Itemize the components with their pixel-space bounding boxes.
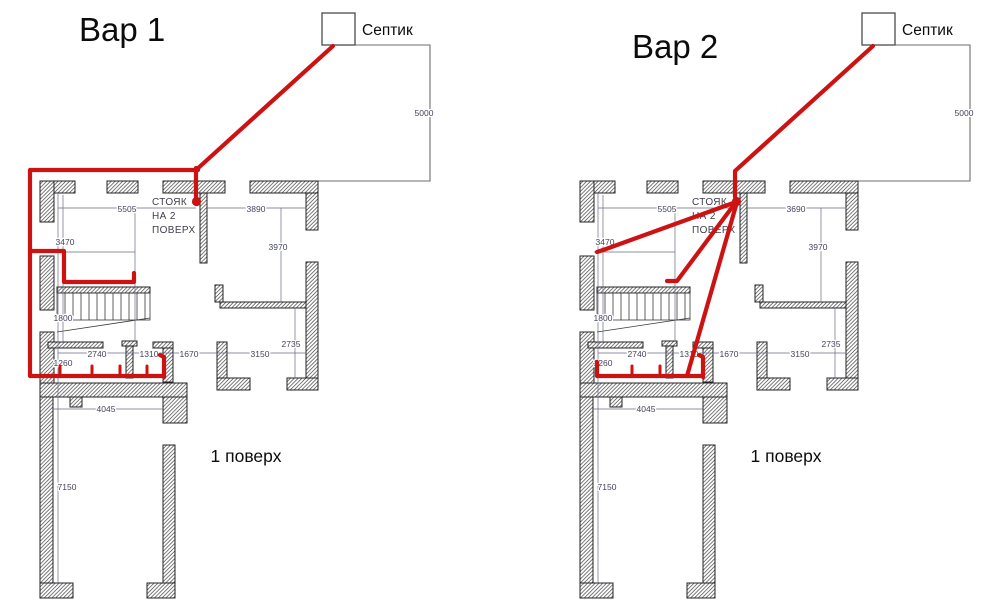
dim-top-right: 3890 xyxy=(247,204,266,214)
septic-label: Септик xyxy=(362,22,413,39)
dim-1260: 1260 xyxy=(54,358,73,368)
pipe-end-stub xyxy=(160,355,164,377)
dim-4045: 4045 xyxy=(637,404,656,414)
dim-2735: 2735 xyxy=(822,339,841,349)
floor-plan-variant-1: Вар 1 Септик 5000 5505 3890 3470 3970 18… xyxy=(30,11,434,598)
dim-7150: 7150 xyxy=(598,482,617,492)
dim-1670: 1670 xyxy=(180,349,199,359)
dim-5505: 5505 xyxy=(118,204,137,214)
pipes-variant-2 xyxy=(597,46,873,377)
dim-top-right: 3690 xyxy=(787,204,806,214)
variant-1-text: Септик 5000 5505 3890 3470 3970 1800 274… xyxy=(54,22,434,492)
variant-1-title: Вар 1 xyxy=(79,11,165,48)
floor-label: 1 поверх xyxy=(211,446,282,466)
dim-3970: 3970 xyxy=(269,242,288,252)
dim-2740: 2740 xyxy=(88,349,107,359)
dim-3150: 3150 xyxy=(251,349,270,359)
dim-4045: 4045 xyxy=(97,404,116,414)
pipe-end-stub xyxy=(699,355,703,377)
floor-plan-variant-2: Вар 2 Септик 5000 5505 3690 3470 3970 18… xyxy=(580,13,974,598)
dim-2735: 2735 xyxy=(282,339,301,349)
pipes-variant-1 xyxy=(30,46,333,377)
blueprint-page: Вар 1 Септик 5000 5505 3890 3470 3970 18… xyxy=(0,0,1000,604)
dim-3470: 3470 xyxy=(56,237,75,247)
riser-outlet-dot xyxy=(192,197,201,206)
dim-3970: 3970 xyxy=(809,242,828,252)
dim-1670: 1670 xyxy=(720,349,739,359)
septic-label: Септик xyxy=(902,22,953,39)
pipe-septic-to-corner xyxy=(196,46,333,170)
dim-5000: 5000 xyxy=(955,108,974,118)
riser-label-line2: НА 2 xyxy=(152,211,176,222)
dim-2740: 2740 xyxy=(628,349,647,359)
dim-1800: 1800 xyxy=(54,313,73,323)
variant-2-title: Вар 2 xyxy=(632,28,718,65)
dim-7150: 7150 xyxy=(58,482,77,492)
dim-3150: 3150 xyxy=(791,349,810,359)
dim-5505: 5505 xyxy=(658,204,677,214)
variant-2-text: Септик 5000 5505 3690 3470 3970 1800 274… xyxy=(594,22,974,492)
dim-1310: 1310 xyxy=(140,349,159,359)
riser-outlet-dot xyxy=(732,197,741,206)
floor-label: 1 поверх xyxy=(751,446,822,466)
riser-label-line3: ПОВЕРХ xyxy=(152,225,196,236)
dim-1800: 1800 xyxy=(594,313,613,323)
dim-5000: 5000 xyxy=(415,108,434,118)
riser-label-line1: СТОЯК xyxy=(152,197,187,208)
pipe-septic-to-riser xyxy=(735,46,873,197)
septic-piping-diagram: Вар 1 Септик 5000 5505 3890 3470 3970 18… xyxy=(0,0,1000,604)
